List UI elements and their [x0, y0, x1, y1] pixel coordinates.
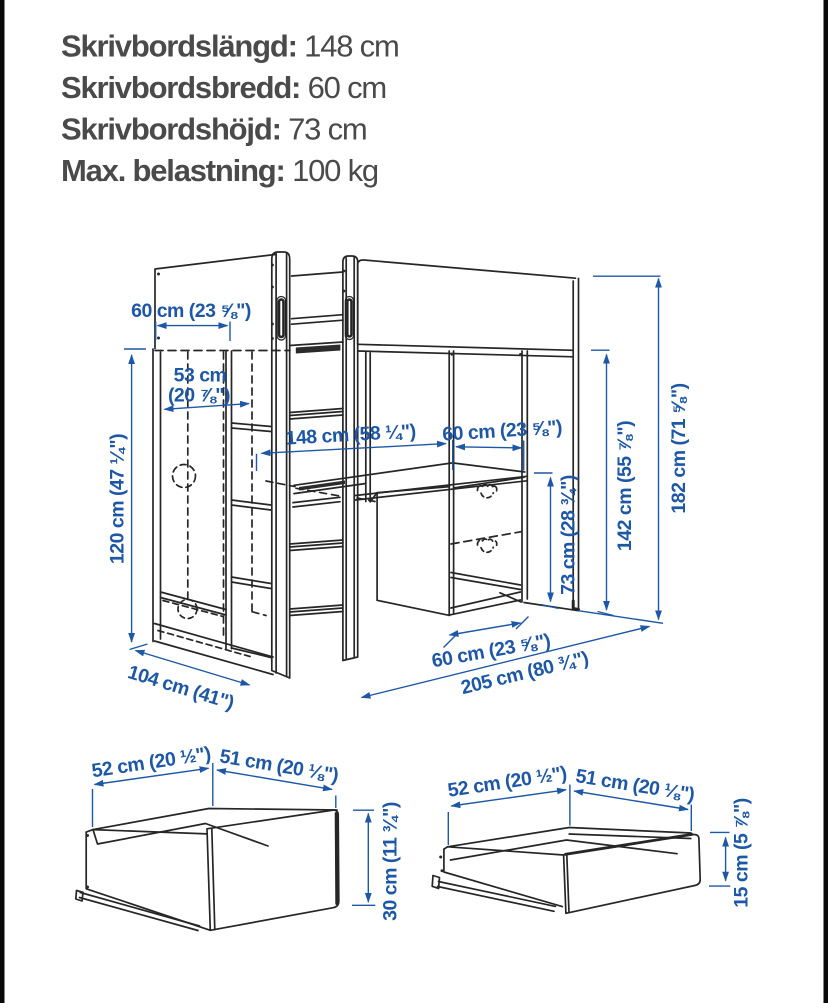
svg-text:15 cm (5 ⅞"): 15 cm (5 ⅞"): [731, 798, 753, 907]
svg-text:(20 ⅞"): (20 ⅞"): [168, 385, 230, 407]
svg-text:104 cm (41"): 104 cm (41"): [125, 661, 236, 714]
svg-text:53 cm: 53 cm: [174, 365, 227, 387]
svg-text:182 cm (71 ⅝"): 182 cm (71 ⅝"): [668, 383, 690, 513]
svg-text:148 cm (58 ¼"): 148 cm (58 ¼"): [285, 420, 416, 449]
svg-text:Skrivbordslängd: 148 cm: Skrivbordslängd: 148 cm: [61, 29, 399, 64]
svg-text:Max. belastning: 100 kg: Max. belastning: 100 kg: [61, 153, 378, 188]
svg-text:60 cm (23 ⅝"): 60 cm (23 ⅝"): [442, 416, 563, 445]
svg-text:30 cm (11 ¾"): 30 cm (11 ¾"): [380, 802, 402, 921]
svg-text:Skrivbordshöjd: 73 cm: Skrivbordshöjd: 73 cm: [61, 112, 367, 147]
svg-text:Skrivbordsbredd: 60 cm: Skrivbordsbredd: 60 cm: [61, 70, 386, 105]
svg-text:60 cm (23 ⅝"): 60 cm (23 ⅝"): [131, 300, 251, 322]
svg-text:120 cm (47 ¼"): 120 cm (47 ¼"): [107, 434, 129, 564]
svg-text:52 cm (20 ½"): 52 cm (20 ½"): [446, 762, 568, 801]
svg-text:142 cm (55 ⅞"): 142 cm (55 ⅞"): [614, 421, 636, 551]
svg-text:51 cm (20 ⅛"): 51 cm (20 ⅛"): [574, 765, 696, 806]
svg-text:73 cm (28 ¾"): 73 cm (28 ¾"): [558, 475, 580, 595]
